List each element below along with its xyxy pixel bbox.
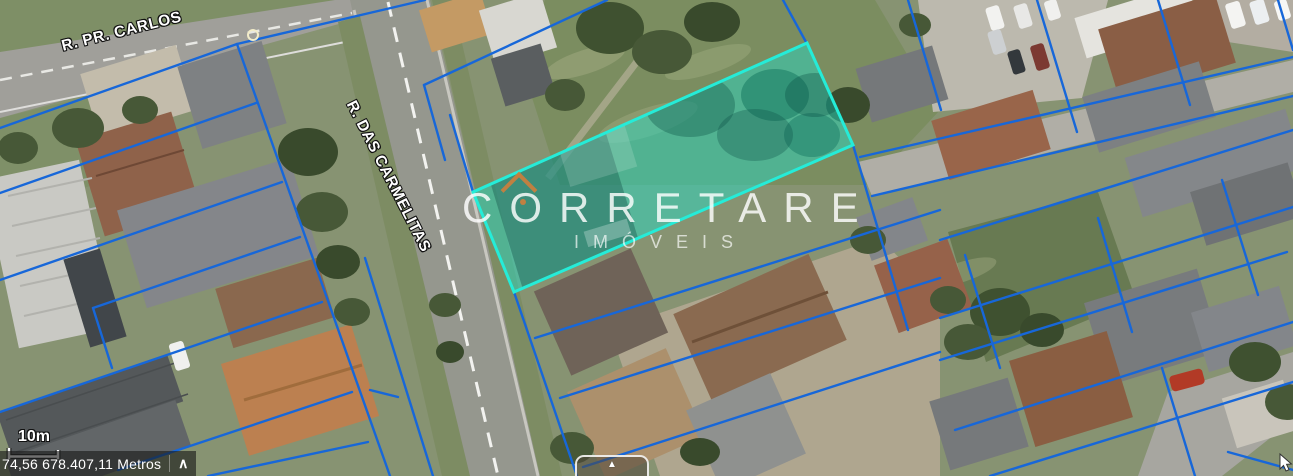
bottom-panel-toggle[interactable]: ▲ — [575, 455, 649, 476]
watermark-brand: CORRETARE — [462, 187, 876, 229]
status-collapse-button[interactable]: ∧ — [170, 451, 196, 476]
map-viewer: R. PR. CARLOS R. DAS CARMELITAS CORRETAR… — [0, 0, 1293, 476]
watermark-letters: RRETARE — [559, 184, 876, 231]
watermark-logo-o: O — [509, 187, 559, 229]
watermark-subtitle: IMÓVEIS — [574, 233, 747, 251]
scale-label: 10m — [18, 428, 50, 446]
status-bar: 74,56 678.407,11 Metros ∧ — [0, 451, 196, 476]
coordinates-readout: 74,56 678.407,11 Metros — [0, 456, 169, 472]
chevron-up-icon: ▲ — [607, 457, 617, 472]
